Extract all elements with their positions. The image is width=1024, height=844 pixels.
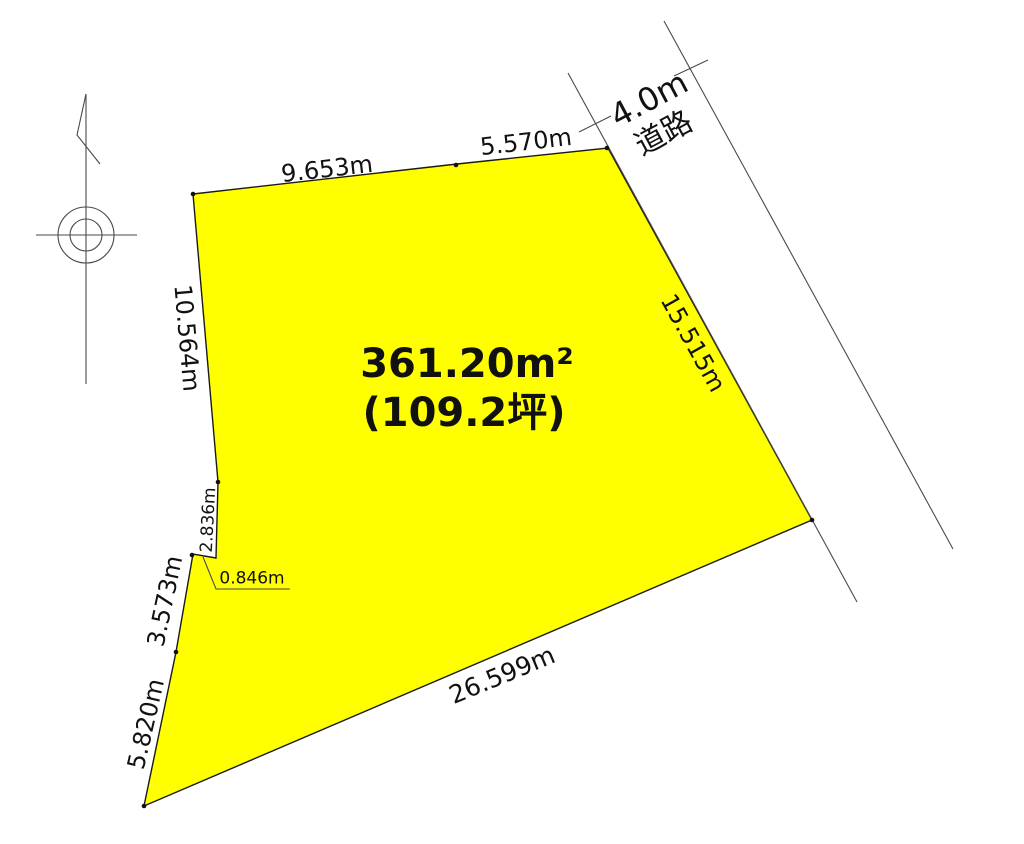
plot-polygon <box>144 148 812 806</box>
vertex-dot <box>190 553 195 558</box>
vertex-dot <box>810 518 815 523</box>
vertex-dot <box>216 480 221 485</box>
road-width-tick-near <box>579 116 611 132</box>
dimension-label-jog: 0.846m <box>219 571 284 588</box>
area-tsubo-label: (109.2坪) <box>362 393 565 433</box>
north-symbol <box>36 94 137 384</box>
vertex-dot <box>142 804 147 809</box>
vertex-dot <box>191 192 196 197</box>
vertex-dot <box>454 163 459 168</box>
north-symbol-flag <box>77 94 100 164</box>
survey-drawing: 9.653m 5.570m 4.0m 道路 15.515m 10.564m 2.… <box>0 0 1024 844</box>
vertex-dot <box>174 650 179 655</box>
area-square-meters-label: 361.20m² <box>360 344 574 384</box>
dimension-label-left-small: 2.836m <box>199 487 219 553</box>
vertex-dot <box>605 146 610 151</box>
